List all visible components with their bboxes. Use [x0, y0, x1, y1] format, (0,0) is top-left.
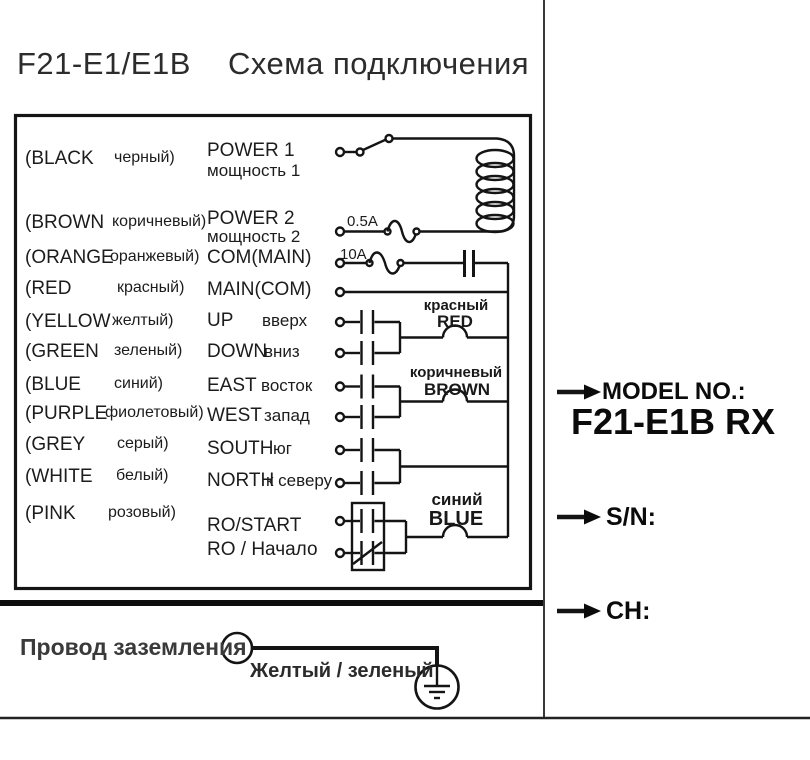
fuse-rating-big: 10A [340, 247, 367, 263]
ground-wire-color-label: Желтый / зеленый [250, 661, 434, 682]
contact-up [336, 310, 400, 334]
channel-arrow-icon [557, 604, 601, 619]
relay-coil-symbol [477, 150, 514, 232]
fuse-rating-small: 0.5A [347, 214, 378, 230]
legend-func: SOUTH [207, 439, 274, 459]
legend-color-ru: серый) [117, 436, 169, 453]
capacitor-symbol [465, 250, 474, 277]
legend-color-ru: красный) [117, 280, 184, 297]
contact-north [336, 471, 400, 495]
legend-color-ru: белый) [116, 468, 168, 485]
contact-east [336, 375, 400, 399]
contact-ro-start [336, 509, 406, 533]
legend-color-ru: синий) [114, 376, 163, 393]
legend-color-en: (GREY [25, 435, 85, 455]
legend-func: MAIN(COM) [207, 280, 311, 300]
contact-ro-nc [336, 541, 406, 565]
legend-func: UP [207, 311, 233, 331]
legend-func: DOWN [207, 342, 267, 362]
wire-label-blue-ru: синий [431, 491, 482, 509]
wire-label-red-en: RED [437, 313, 473, 331]
legend-color-en: (BLACK [25, 149, 94, 169]
legend-func-ru: запад [264, 407, 310, 425]
legend-func: WEST [207, 406, 262, 426]
legend-color-ru: оранжевый) [110, 249, 199, 266]
legend-color-en: (YELLOW [25, 312, 111, 332]
title-model-number: F21-E1/E1B [17, 48, 191, 81]
wire-label-brown-en: BROWN [424, 381, 490, 399]
legend-color-ru: желтый) [112, 313, 174, 330]
legend-color-ru: зеленый) [114, 343, 182, 360]
contact-west [336, 405, 400, 429]
wire-label-blue-en: BLUE [429, 509, 483, 530]
title-heading: Схема подключения [228, 48, 529, 81]
legend-color-ru: розовый) [108, 505, 176, 522]
legend-func-ru: мощность 1 [207, 162, 300, 180]
legend-color-ru: черный) [114, 150, 175, 167]
legend-func: POWER 2 [207, 209, 295, 229]
legend-func: RO/START [207, 516, 301, 536]
wiring-diagram-page: F21-E1/E1B Схема подключения (BLACK черн… [0, 0, 810, 760]
legend-func: EAST [207, 376, 257, 396]
contact-down [336, 341, 400, 365]
wire-label-brown-ru: коричневый [410, 365, 502, 381]
legend-func-ru: восток [261, 377, 312, 395]
legend-func: POWER 1 [207, 141, 295, 161]
ground-wire-label: Провод заземления [20, 635, 247, 659]
south-north-output-wire [400, 450, 508, 483]
legend-func-ru: вниз [264, 343, 300, 361]
legend-func-ru: к северу [266, 472, 332, 490]
legend-color-en: (PURPLE [25, 404, 107, 424]
model-no-value: F21-E1B RX [571, 403, 775, 441]
legend-color-en: (WHITE [25, 467, 93, 487]
legend-func: NORTH [207, 471, 274, 491]
legend-color-en: (BROWN [25, 213, 104, 233]
serial-arrow-icon [557, 510, 601, 525]
channel-label: CH: [606, 598, 650, 624]
legend-color-en: (ORANGE [25, 248, 114, 268]
legend-func-ru: юг [273, 440, 292, 458]
model-arrow-icon [557, 385, 601, 400]
contact-south [336, 438, 400, 462]
legend-color-ru: коричневый) [112, 214, 206, 231]
legend-color-en: (PINK [25, 504, 76, 524]
legend-color-en: (GREEN [25, 342, 99, 362]
legend-func-ru: мощность 2 [207, 228, 300, 246]
legend-color-en: (RED [25, 279, 71, 299]
main-com-wire [336, 288, 508, 296]
legend-color-en: (BLUE [25, 375, 81, 395]
divider-thick-line [0, 600, 543, 606]
legend-func: COM(MAIN) [207, 248, 311, 268]
legend-color-ru: фиолетовый) [105, 405, 204, 422]
legend-func-ru: вверх [262, 312, 307, 330]
serial-no-label: S/N: [606, 504, 656, 530]
legend-func-ru: RO / Начало [207, 540, 318, 560]
